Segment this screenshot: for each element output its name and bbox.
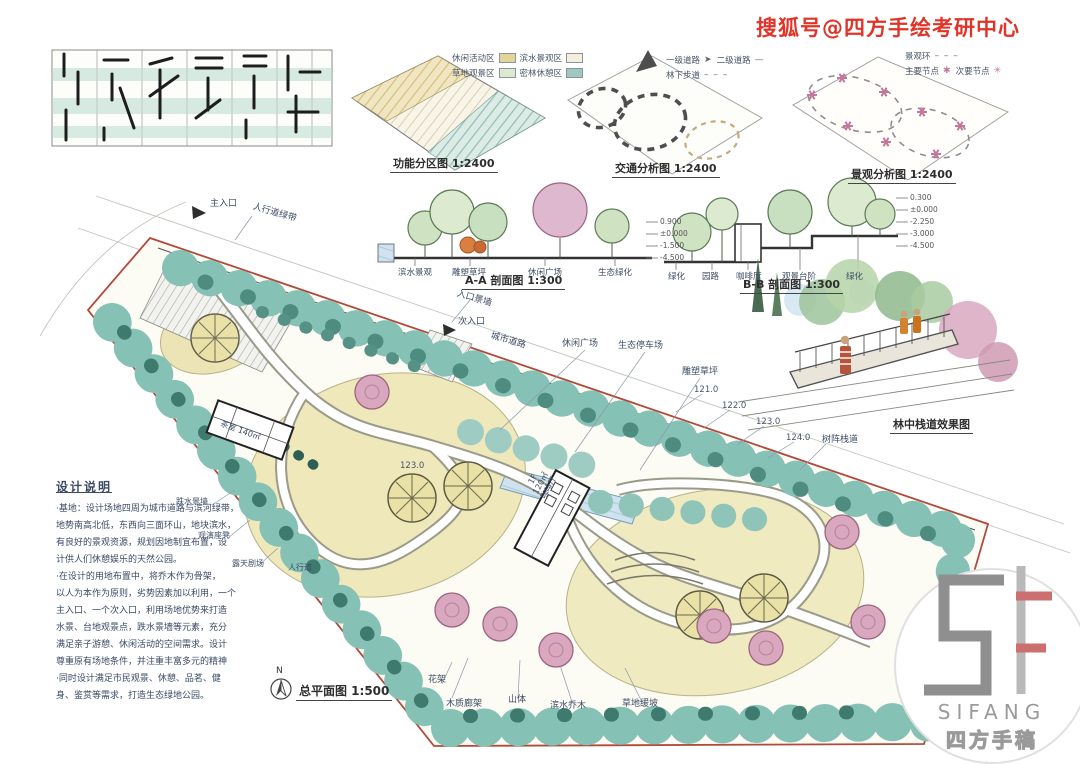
section-aa-elevation: ±0.000	[660, 229, 688, 238]
label-elevation: 123.0	[756, 418, 780, 427]
design-notes-line: 主入口、一个次入口，利用场地优势来打造	[56, 603, 270, 620]
function-legend-label: 密林休憩区	[520, 67, 563, 79]
section-bb-label: 园路	[702, 270, 719, 282]
section-bb-elevation: 0.300	[910, 193, 931, 202]
label-elevation: 122.0	[722, 402, 746, 411]
design-notes-title: 设计说明	[56, 478, 270, 495]
traffic-legend-label: 一级道路	[666, 54, 700, 66]
label-lawn-elevation: 123.0	[400, 462, 424, 471]
section-bb-elevation: -3.000	[910, 229, 934, 238]
design-notes-line: ·基地：设计场地四周为城市道路与滨河绿带，	[56, 501, 270, 518]
function-legend-label: 滨水景观区	[520, 52, 563, 64]
label-hill: 山体	[508, 696, 526, 706]
section-aa-elevation: 0.900	[660, 217, 681, 226]
main-entrance-arrow-icon	[192, 206, 206, 219]
section-aa-label: 生态绿化	[598, 266, 632, 278]
design-notes-line: 以人为本作为原则，劣势因素加以利用，一个	[56, 586, 270, 603]
function-diagram-caption: 功能分区图 1:2400	[390, 155, 498, 173]
design-notes: 设计说明 ·基地：设计场地四周为城市道路与滨河绿带， 地势南高北低，东西向三面环…	[56, 478, 270, 705]
label-secondary-entrance: 次入口	[458, 318, 485, 328]
north-letter: N	[276, 666, 283, 676]
section-aa-label: 雕塑草坪	[452, 266, 486, 278]
label-footpath: 人行道	[288, 564, 312, 573]
section-bb-label: 咖啡厅	[736, 270, 762, 282]
section-bb	[664, 178, 908, 270]
label-main-entrance: 主入口	[210, 200, 237, 210]
label-lawn-slope: 草地缓坡	[622, 700, 658, 710]
watermark-text: 搜狐号@四方手绘考研中心	[756, 12, 1020, 42]
landscape-legend-label: 景观环	[905, 50, 931, 62]
design-notes-line: ·同时设计满足市民观景、休憩、品茗、健	[56, 671, 270, 688]
function-legend-swatch	[566, 53, 583, 63]
traffic-diagram-caption: 交通分析图 1:2400	[612, 160, 720, 178]
landscape-legend-label: 主要节点	[905, 65, 939, 77]
section-aa-label: 休闲广场	[528, 266, 562, 278]
label-wood-gallery: 木质廊架	[446, 700, 482, 710]
landscape-legend: 景观环 – – – 主要节点 ✱ 次要节点 ✳	[905, 50, 1002, 80]
function-legend-label: 休闲活动区	[452, 52, 495, 64]
label-boardwalk: 树阵栈道	[822, 436, 858, 446]
label-waterside-trees: 滨水乔木	[550, 702, 586, 712]
design-notes-line: 地势南高北低，东西向三面环山，地块滨水，	[56, 518, 270, 535]
traffic-legend: 一级道路 ➤ 二级道路 — 林下步道 – – –	[666, 54, 765, 84]
label-elevation: 121.0	[694, 386, 718, 395]
logo-name-en: SIFANG	[892, 700, 1080, 724]
function-legend: 休闲活动区 滨水景观区 草地观景区 密林休憩区	[452, 52, 583, 82]
section-aa	[378, 183, 658, 266]
label-eco-parking: 生态停车场	[618, 342, 663, 352]
plan-caption: 总平面图 1:500	[296, 682, 392, 701]
sifang-logo-text: SIFANG 四方手稿	[892, 700, 1080, 753]
landscape-diagram-caption: 景观分析图 1:2400	[848, 166, 956, 184]
traffic-legend-label: 林下步道	[666, 69, 700, 81]
function-legend-swatch	[499, 53, 516, 63]
design-notes-line: ·在设计的用地布置中，将乔木作为骨架，	[56, 569, 270, 586]
function-legend-label: 草地观景区	[452, 67, 495, 79]
label-leisure-plaza: 休闲广场	[562, 340, 598, 350]
title-art-block	[52, 50, 332, 146]
landscape-legend-label: 次要节点	[956, 65, 990, 77]
minor-node-icon: ✳	[994, 66, 1003, 76]
label-sculpture-lawn: 雕塑草坪	[682, 368, 718, 378]
design-notes-line: 计供人们休憩娱乐的天然公园。	[56, 552, 270, 569]
north-arrow-icon	[271, 679, 291, 699]
drawing-sheet: 搜狐号@四方手绘考研中心 休闲活动区 滨水景观区 草地观景区 密林休憩区 一级道…	[0, 0, 1080, 764]
major-node-icon: ✱	[943, 66, 952, 76]
arrow-icon: ➤	[704, 55, 713, 65]
design-notes-line: 水景、台地观景点，跌水景墙等元素，充分	[56, 620, 270, 637]
label-trellis: 花架	[428, 676, 446, 686]
section-bb-label: 观景台阶	[782, 270, 816, 282]
function-legend-swatch	[499, 68, 516, 78]
section-bb-label: 绿化	[846, 270, 863, 282]
design-notes-line: 尊重原有场地条件，并注重丰富多元的精神	[56, 654, 270, 671]
section-aa-elevation: -4.500	[660, 253, 684, 262]
design-notes-line: 有良好的景观资源，规划因地制宜布置，设	[56, 535, 270, 552]
dash-icon: – – –	[704, 70, 728, 80]
design-notes-line: 满足亲子游憩、休闲活动的空间需求。设计	[56, 637, 270, 654]
label-elevation: 124.0	[786, 434, 810, 443]
function-legend-swatch	[566, 68, 583, 78]
section-aa-elevation: -1.500	[660, 241, 684, 250]
section-bb-label: 绿化	[668, 270, 685, 282]
section-bb-elevation: -4.500	[910, 241, 934, 250]
section-bb-elevation: ±0.000	[910, 205, 938, 214]
design-notes-line: 身、鉴赏等需求，打造生态绿地公园。	[56, 688, 270, 705]
section-aa-label: 滨水景观	[398, 266, 432, 278]
dash-icon: – – –	[935, 51, 959, 61]
section-bb-elevation: -2.250	[910, 217, 934, 226]
traffic-legend-label: 二级道路	[717, 54, 751, 66]
line-icon: —	[755, 55, 765, 65]
logo-name-cn: 四方手稿	[892, 724, 1080, 753]
secondary-entrance-arrow-icon	[443, 324, 456, 336]
perspective-caption: 林中栈道效果图	[890, 416, 973, 434]
